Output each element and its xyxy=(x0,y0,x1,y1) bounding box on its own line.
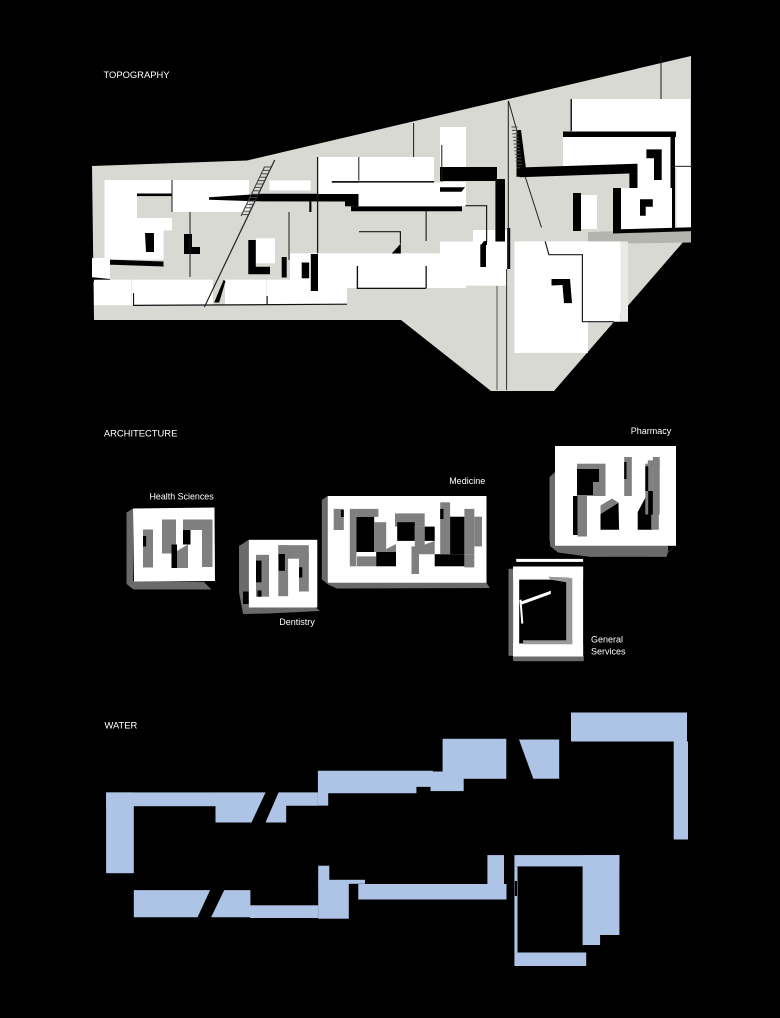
svg-text:Health Sciences: Health Sciences xyxy=(150,492,215,502)
svg-text:ARCHITECTURE: ARCHITECTURE xyxy=(104,427,177,438)
svg-text:Dentistry: Dentistry xyxy=(279,617,315,627)
svg-text:Medicine: Medicine xyxy=(449,476,485,486)
svg-text:WATER: WATER xyxy=(105,719,138,730)
svg-text:TOPOGRAPHY: TOPOGRAPHY xyxy=(104,69,171,80)
svg-text:Pharmacy: Pharmacy xyxy=(631,426,672,436)
svg-text:General: General xyxy=(591,635,623,645)
svg-text:Services: Services xyxy=(591,647,626,657)
